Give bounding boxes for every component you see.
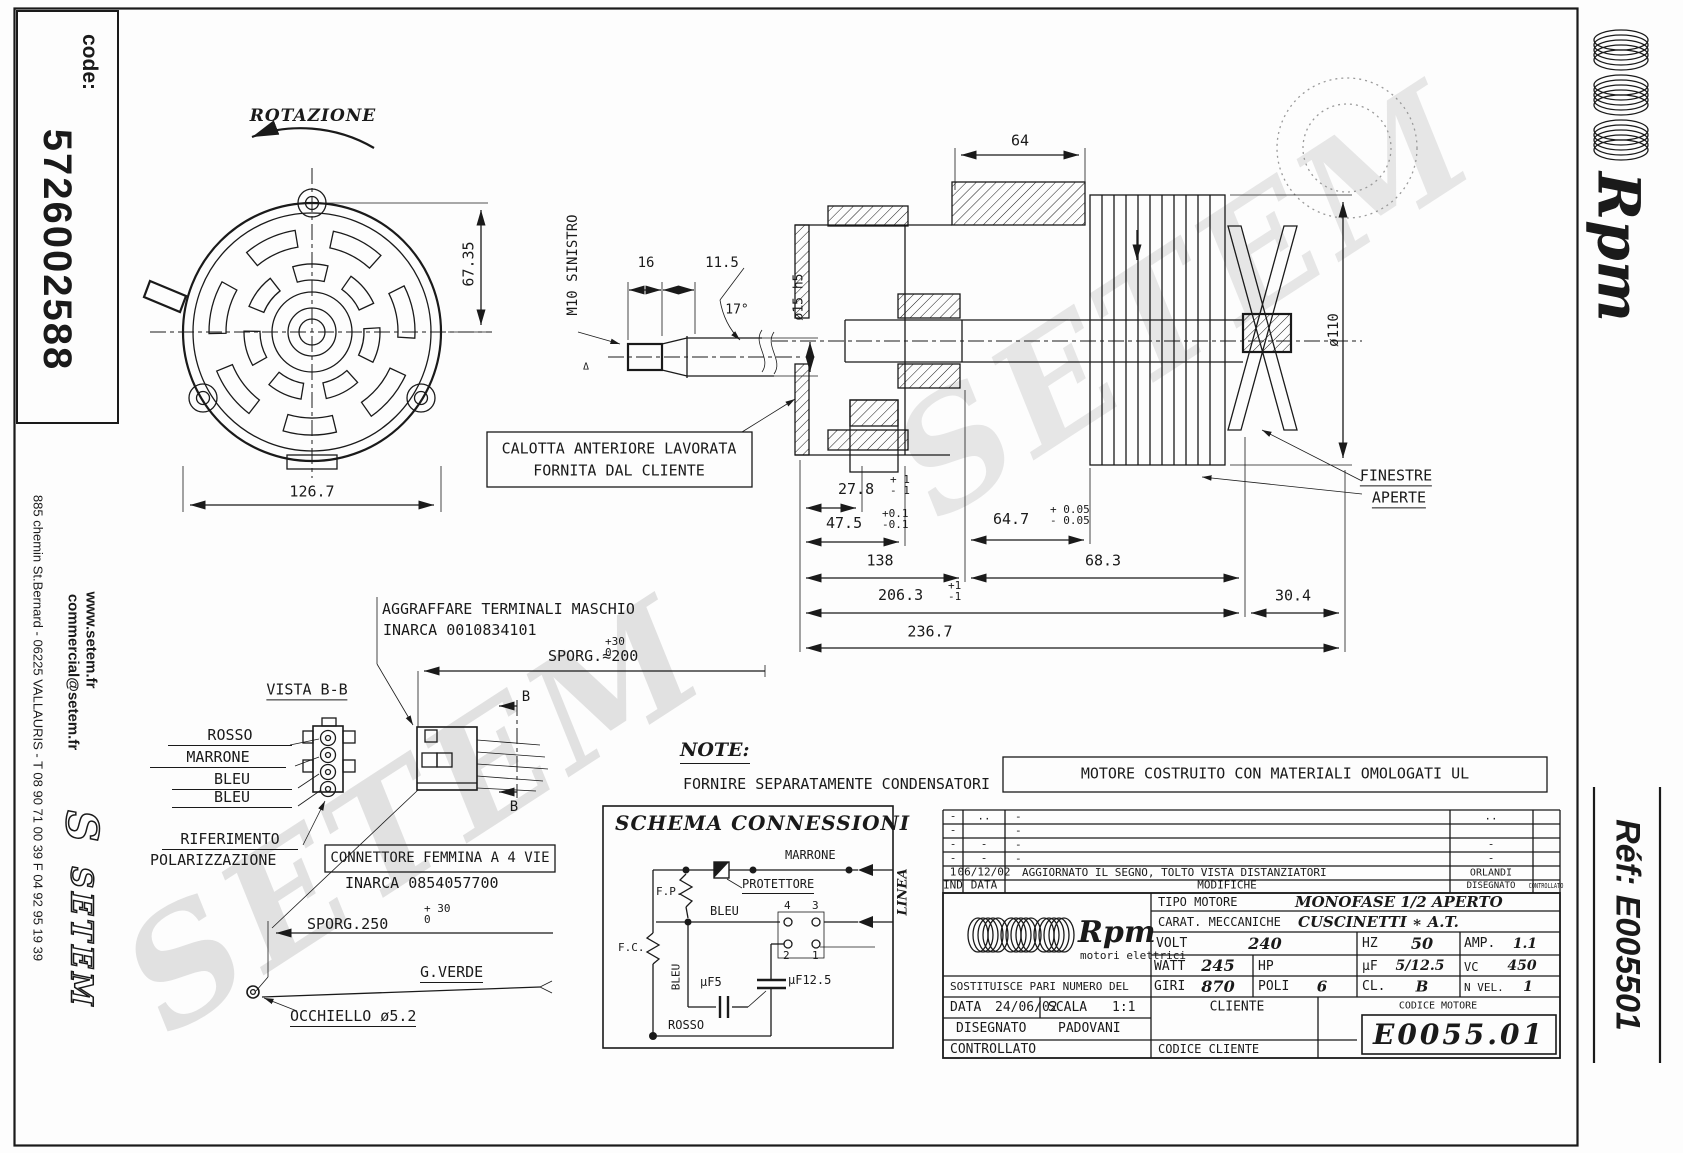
sostituisce-label: SOSTITUISCE PARI NUMERO DEL: [950, 981, 1129, 994]
rev-row-cell: -: [1015, 811, 1022, 824]
note-body: FORNIRE SEPARATAMENTE CONDENSATORI: [683, 776, 990, 793]
vc-value: 450: [1507, 958, 1536, 974]
cliente-label: CLIENTE: [1210, 1001, 1265, 1016]
calotta-note-line1: CALOTTA ANTERIORE LAVORATA: [502, 440, 737, 457]
setem-logo: SETEM: [63, 867, 98, 1010]
volt-value: 240: [1248, 935, 1281, 953]
rev-row-cell: -: [981, 853, 988, 866]
tipo-motore-value: MONOFASE 1/2 APERTO: [1295, 894, 1503, 911]
schema-circuit: [603, 806, 893, 1048]
rev-header-modifiche: MODIFICHE: [1197, 880, 1257, 893]
email-link[interactable]: commercial@setem.fr: [64, 594, 81, 750]
ref-number: Réf: E005501: [1607, 819, 1646, 1031]
code-value: 5726002588: [34, 129, 80, 371]
rev-row-cell: ..: [977, 811, 990, 824]
note-title: NOTE:: [680, 740, 750, 764]
sostituisce-value: -: [1114, 980, 1122, 995]
schema-cap-5: µF5: [700, 976, 722, 990]
wire-label-bleu-2: BLEU: [172, 789, 292, 808]
rev-row-cell: -: [1015, 853, 1022, 866]
volt-label: VOLT: [1156, 937, 1187, 952]
dim-dia-110: ø110: [1326, 313, 1342, 347]
dim-27-8-tol: + 1- 1: [890, 474, 910, 496]
controllato-label: CONTROLLATO: [950, 1043, 1036, 1058]
rotation-label: ROTAZIONE: [250, 107, 377, 127]
riferimento-label-line1: RIFERIMENTO: [162, 831, 298, 850]
rev-row-cell: -: [981, 839, 988, 852]
schema-fc: F.C.: [618, 942, 645, 955]
dim-11-5: 11.5: [705, 255, 739, 271]
rotation-arrow: [252, 128, 374, 148]
occhiello-label: OCCHIELLO ø5.2: [290, 1008, 416, 1027]
rev-row-cell: -: [1015, 839, 1022, 852]
hz-label: HZ: [1362, 937, 1378, 952]
hz-value: 50: [1411, 935, 1433, 953]
rev-row-cell: -: [1488, 853, 1495, 866]
website-link[interactable]: www.setem.fr: [82, 592, 99, 689]
schema-terminal-3: 3: [812, 900, 819, 913]
gverde-label: G.VERDE: [420, 964, 483, 983]
schema-fp: F.P.: [656, 886, 683, 899]
code-label: code:: [77, 34, 101, 90]
tipo-motore-label: TIPO MOTORE: [1158, 896, 1237, 910]
aggraffare-note-line2: INARCA 0010834101: [383, 622, 537, 639]
rev-header-data: DATA: [971, 880, 998, 893]
dim-16: 16: [638, 255, 655, 271]
giri-value: 870: [1201, 978, 1234, 996]
schema-linea: LINEA: [897, 868, 912, 915]
calotta-note-line2: FORNITA DAL CLIENTE: [533, 462, 705, 479]
dim-68-3: 68.3: [1085, 552, 1121, 569]
cl-value: B: [1416, 978, 1429, 995]
sporg-250-tol: + 300: [424, 903, 451, 925]
dim-236-7: 236.7: [907, 623, 952, 640]
rev-row-cell: -: [950, 825, 957, 838]
disegnato-label: DISEGNATO: [956, 1022, 1026, 1037]
sporg-250-label: SPORG.250: [307, 916, 388, 933]
titleblock-rpm-brand: Rpm: [1078, 916, 1156, 951]
dim-138: 138: [866, 552, 893, 569]
stamp-circle-icon: [1277, 78, 1417, 218]
carat-value: CUSCINETTI ∗ A.T.: [1298, 914, 1459, 931]
rev-header-controllato: CONTROLLATO: [1529, 882, 1564, 890]
finestre-label-line2: APERTE: [1372, 489, 1426, 508]
amp-value: 1.1: [1513, 936, 1537, 952]
aggraffare-note-line1: AGGRAFFARE TERMINALI MASCHIO: [382, 601, 635, 618]
rev-row-cell: ..: [1484, 811, 1497, 824]
dim-64-7: 64.7: [993, 511, 1029, 528]
wire-label-rosso: ROSSO: [168, 727, 292, 746]
riferimento-label-line2: POLARIZZAZIONE: [150, 852, 276, 869]
section-b-mark-bottom: B: [510, 799, 518, 815]
vc-label: VC: [1464, 961, 1478, 975]
shaft-detail: [578, 268, 818, 378]
amp-label: AMP.: [1464, 937, 1495, 952]
setem-swoosh-icon: S: [55, 810, 106, 842]
dim-206-3-tol: +1-1: [948, 580, 961, 602]
wire-label-marrone: MARRONE: [150, 749, 286, 768]
uf-value: 5/12.5: [1396, 958, 1445, 974]
finestre-label-line1: FINESTRE: [1360, 467, 1432, 486]
codice-cliente-label: CODICE CLIENTE: [1158, 1043, 1259, 1057]
linework: [0, 0, 1683, 1153]
dim-206-3: 206.3: [878, 587, 923, 604]
dim-30-4: 30.4: [1275, 587, 1311, 604]
carat-label: CARAT. MECCANICHE: [1158, 916, 1281, 930]
company-address: 885 chemin St.Bernard - 06225 VALLAURIS …: [30, 495, 45, 961]
poli-value: 6: [1317, 978, 1327, 995]
rev-row-cell: -: [950, 811, 957, 824]
schema-rosso: ROSSO: [668, 1019, 704, 1033]
data-label: DATA: [950, 1001, 981, 1016]
schema-cap-12-5: µF12.5: [788, 974, 831, 988]
schema-title: SCHEMA CONNESSIONI: [615, 812, 910, 835]
hp-label: HP: [1258, 960, 1274, 975]
watt-value: 245: [1201, 957, 1234, 975]
rev-header-ind: IND: [943, 880, 963, 893]
cl-label: CL.: [1362, 980, 1385, 995]
sporg-200-tol: +300: [605, 636, 625, 658]
schema-bleu-vertical: BLEU: [671, 964, 684, 991]
nvel-label: N VEL.: [1464, 982, 1504, 995]
surface-mark: Δ: [583, 361, 589, 373]
dim-47-5-tol: +0.1-0.1: [882, 508, 909, 530]
codice-motore-value: E0055.01: [1373, 1019, 1545, 1051]
ul-note: MOTORE COSTRUITO CON MATERIALI OMOLOGATI…: [1081, 765, 1469, 782]
rev-row-cell: -: [950, 853, 957, 866]
rpm-logo: Rpm: [1585, 172, 1652, 322]
dim-47-5: 47.5: [826, 515, 862, 532]
rev-row-cell: 06/12/02: [958, 867, 1011, 880]
codice-motore-label: CODICE MOTORE: [1399, 1000, 1477, 1012]
rev-row-cell: -: [1015, 825, 1022, 838]
front-view: [144, 168, 492, 478]
schema-terminal-2: 2: [783, 950, 790, 963]
rev-row-cell: 1: [950, 867, 957, 880]
dim-angle-17: 17°: [725, 304, 748, 319]
nvel-value: 1: [1523, 979, 1533, 995]
dim-27-8: 27.8: [838, 481, 874, 498]
disegnato-value: PADOVANI: [1058, 1022, 1121, 1037]
rev-row-cell: ORLANDI: [1470, 867, 1512, 879]
schema-protettore: PROTETTORE: [742, 878, 814, 894]
drawing-sheet: SETEM SETEM: [0, 0, 1683, 1153]
schema-terminal-4: 4: [784, 900, 791, 913]
rev-row-cell: -: [950, 839, 957, 852]
uf-label: µF: [1362, 960, 1378, 975]
rev-row-cell: AGGIORNATO IL SEGNO, TOLTO VISTA DISTANZ…: [1022, 867, 1327, 880]
section-view: [772, 182, 1362, 472]
connettore-note-line2: INARCA 0854057700: [345, 875, 499, 892]
schema-terminal-1: 1: [812, 950, 819, 963]
dim-64: 64: [1011, 132, 1029, 149]
schema-bleu: BLEU: [710, 905, 739, 919]
vista-bb-label: VISTA B-B: [266, 681, 347, 700]
scala-label: SCALA: [1048, 1001, 1087, 1016]
schema-marrone: MARRONE: [785, 849, 836, 863]
rpm-coils-large-icon: [1594, 30, 1648, 160]
connettore-note-line1: CONNETTORE FEMMINA A 4 VIE: [330, 850, 549, 866]
dim-dia-15: ø15 h5: [793, 274, 808, 321]
giri-label: GIRI: [1154, 980, 1185, 995]
rev-header-disegnato: DISEGNATO: [1467, 881, 1516, 891]
dim-64-7-tol: + 0.05- 0.05: [1050, 504, 1090, 526]
rev-row-cell: -: [1488, 839, 1495, 852]
scala-value: 1:1: [1112, 1001, 1135, 1016]
section-b-mark-top: B: [522, 689, 530, 705]
connector-vista-bb: [303, 718, 355, 797]
rpm-coils-small-icon: [968, 918, 1074, 952]
poli-label: POLI: [1258, 980, 1289, 995]
dim-126-7: 126.7: [289, 483, 334, 500]
watt-label: WATT: [1154, 960, 1185, 975]
dim-67-35: 67.35: [460, 241, 477, 286]
m10-label: M10 SINISTRO: [565, 214, 581, 315]
